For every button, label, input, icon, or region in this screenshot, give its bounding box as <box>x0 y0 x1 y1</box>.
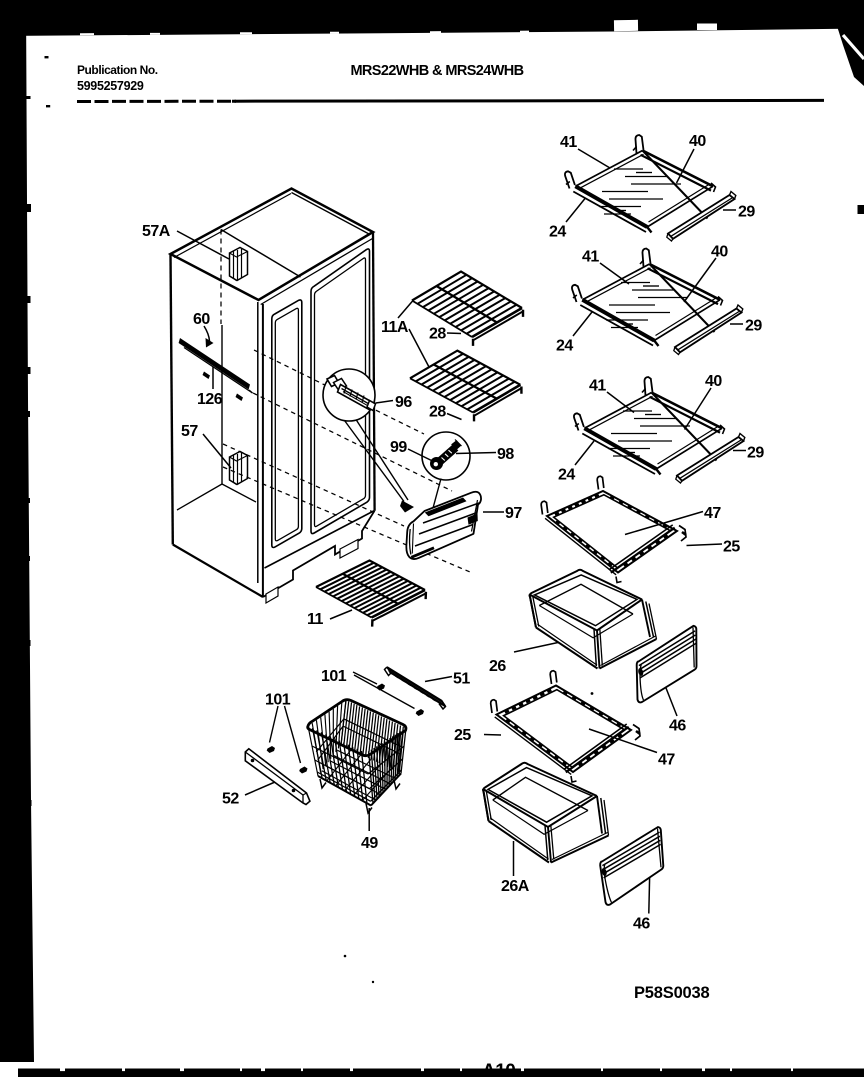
svg-text:126: 126 <box>197 391 223 408</box>
svg-text:25: 25 <box>454 727 471 744</box>
svg-text:99: 99 <box>390 439 407 456</box>
svg-text:57: 57 <box>181 423 198 440</box>
svg-text:24: 24 <box>556 338 573 355</box>
svg-text:47: 47 <box>704 505 721 522</box>
svg-text:101: 101 <box>265 692 291 709</box>
svg-text:P58S0038: P58S0038 <box>634 984 709 1002</box>
svg-text:26A: 26A <box>501 878 530 895</box>
svg-text:51: 51 <box>453 671 470 688</box>
svg-text:98: 98 <box>497 446 514 463</box>
svg-text:A10: A10 <box>482 1061 515 1077</box>
svg-text:40: 40 <box>705 373 722 390</box>
svg-text:11: 11 <box>307 611 324 628</box>
svg-text:24: 24 <box>549 224 566 241</box>
svg-text:29: 29 <box>745 318 762 335</box>
svg-text:47: 47 <box>658 752 675 769</box>
svg-text:28: 28 <box>429 404 446 421</box>
svg-text:52: 52 <box>222 791 239 808</box>
svg-text:57A: 57A <box>142 223 171 240</box>
svg-text:24: 24 <box>558 467 575 484</box>
svg-text:96: 96 <box>395 394 412 411</box>
svg-text:41: 41 <box>589 378 606 395</box>
svg-text:97: 97 <box>505 505 522 522</box>
svg-text:28: 28 <box>429 326 446 343</box>
svg-text:49: 49 <box>361 835 378 852</box>
svg-text:46: 46 <box>633 916 650 933</box>
svg-text:101: 101 <box>321 668 347 685</box>
svg-text:60: 60 <box>193 311 210 328</box>
svg-text:41: 41 <box>560 134 577 151</box>
svg-text:29: 29 <box>747 445 764 462</box>
svg-text:40: 40 <box>711 244 728 261</box>
svg-text:29: 29 <box>738 204 755 221</box>
svg-text:40: 40 <box>689 133 706 150</box>
svg-text:11A: 11A <box>381 319 409 336</box>
svg-text:26: 26 <box>489 658 506 675</box>
svg-text:MRS22WHB & MRS24WHB: MRS22WHB & MRS24WHB <box>350 63 523 79</box>
svg-text:Publication No.: Publication No. <box>77 63 158 77</box>
svg-text:5995257929: 5995257929 <box>77 79 144 93</box>
svg-text:46: 46 <box>669 718 686 735</box>
svg-text:25: 25 <box>723 539 740 556</box>
svg-text:41: 41 <box>582 249 599 266</box>
